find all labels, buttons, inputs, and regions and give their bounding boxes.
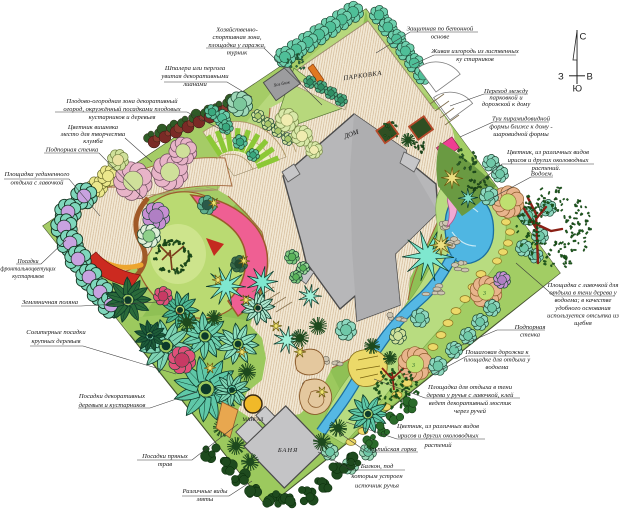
svg-text:3: 3 [482,291,486,297]
svg-text:З: З [558,72,564,83]
svg-text:Подпорная стенка: Подпорная стенка [45,147,99,154]
svg-text:С: С [580,32,587,43]
svg-text:БАНЯ: БАНЯ [277,447,298,454]
svg-text:3: 3 [411,363,415,369]
svg-text:Цветник, из различных видовир: Цветник, из различных видовирисов и друг… [506,149,589,164]
svg-text:Туи пирамидовиднойформы ближе: Туи пирамидовиднойформы ближе к дому -ша… [489,116,552,139]
svg-text:Земляничная поляна: Земляничная поляна [22,299,79,306]
svg-text:Водоем.: Водоем. [531,171,554,178]
svg-text:МАНГАЛ: МАНГАЛ [242,418,264,423]
svg-text:В: В [587,72,593,83]
svg-text:Ю: Ю [573,84,583,95]
